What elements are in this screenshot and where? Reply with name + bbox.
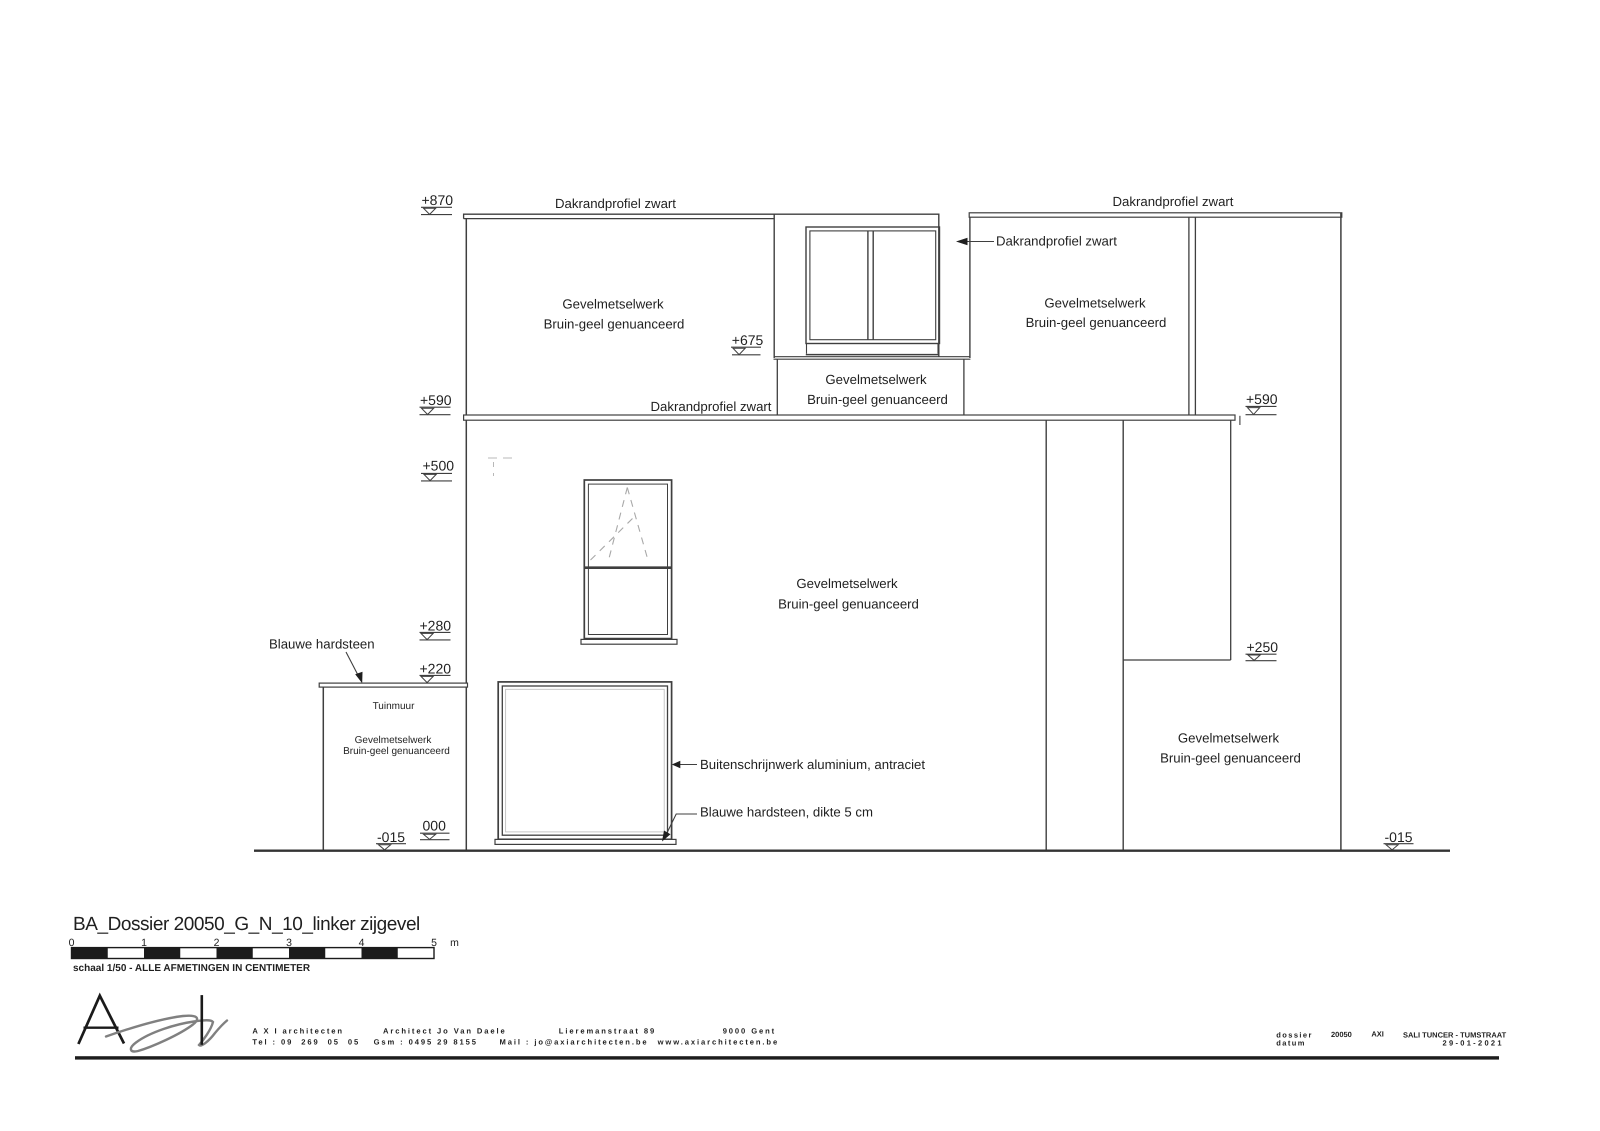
svg-text:+590: +590 [420,392,452,408]
svg-text:www.axiarchitecten.be: www.axiarchitecten.be [657,1037,780,1046]
svg-text:000: 000 [423,817,447,833]
svg-text:-015: -015 [1385,829,1413,845]
svg-text:Blauwe hardsteen, dikte 5 cm: Blauwe hardsteen, dikte 5 cm [700,805,873,820]
svg-text:+250: +250 [1247,639,1279,655]
svg-text:A X I architecten: A X I architecten [252,1027,344,1036]
svg-text:Bruin-geel genuanceerd: Bruin-geel genuanceerd [807,392,948,407]
svg-text:Gevelmetselwerk: Gevelmetselwerk [1044,296,1146,311]
svg-text:datum: datum [1276,1038,1306,1047]
svg-text:Blauwe hardsteen: Blauwe hardsteen [269,637,375,652]
svg-text:Dakrandprofiel zwart: Dakrandprofiel zwart [1113,194,1234,209]
svg-text:-015: -015 [377,829,405,845]
svg-text:Architect Jo Van Daele: Architect Jo Van Daele [383,1027,507,1036]
svg-text:Gevelmetselwerk: Gevelmetselwerk [796,576,898,591]
svg-text:Gsm : 0495 29 8155: Gsm : 0495 29 8155 [374,1037,478,1046]
svg-text:Mail : jo@axiarchitecten.be: Mail : jo@axiarchitecten.be [500,1037,649,1046]
svg-text:Dakrandprofiel zwart: Dakrandprofiel zwart [996,234,1117,249]
svg-text:BA_Dossier 20050_G_N_10_linker: BA_Dossier 20050_G_N_10_linker zijgevel [73,914,420,935]
svg-text:Dakrandprofiel zwart: Dakrandprofiel zwart [555,196,676,211]
svg-text:Gevelmetselwerk: Gevelmetselwerk [825,372,927,387]
svg-text:9000 Gent: 9000 Gent [723,1027,776,1036]
svg-text:+590: +590 [1246,391,1278,407]
svg-text:+675: +675 [732,332,764,348]
svg-text:+220: +220 [420,660,452,676]
svg-text:+280: +280 [420,617,452,633]
svg-text:29-01-2021: 29-01-2021 [1443,1038,1504,1047]
svg-text:+870: +870 [422,192,454,208]
svg-text:schaal 1/50 - ALLE AFMETINGEN: schaal 1/50 - ALLE AFMETINGEN IN CENTIME… [73,963,311,974]
svg-text:Dakrandprofiel zwart: Dakrandprofiel zwart [651,399,772,414]
svg-text:Gevelmetselwerk: Gevelmetselwerk [562,297,664,312]
svg-text:20050: 20050 [1331,1030,1352,1039]
svg-text:m: m [450,937,459,949]
svg-text:AXI: AXI [1371,1030,1384,1039]
svg-text:+500: +500 [423,457,455,473]
svg-text:Bruin-geel genuanceerd: Bruin-geel genuanceerd [1160,751,1301,766]
svg-text:Bruin-geel genuanceerd: Bruin-geel genuanceerd [544,317,685,332]
svg-text:Tel : 09 269 05 05: Tel : 09 269 05 05 [252,1037,360,1046]
svg-text:Buitenschrijnwerk aluminium, a: Buitenschrijnwerk aluminium, antraciet [700,757,925,772]
svg-text:Gevelmetselwerk: Gevelmetselwerk [1178,731,1280,746]
svg-text:Bruin-geel genuanceerd: Bruin-geel genuanceerd [778,597,919,612]
svg-text:Gevelmetselwerk: Gevelmetselwerk [355,735,433,746]
svg-text:Bruin-geel genuanceerd: Bruin-geel genuanceerd [1026,315,1167,330]
svg-text:Tuinmuur: Tuinmuur [373,701,416,712]
svg-text:Bruin-geel genuanceerd: Bruin-geel genuanceerd [343,746,450,757]
svg-text:Lieremanstraat 89: Lieremanstraat 89 [559,1027,656,1036]
